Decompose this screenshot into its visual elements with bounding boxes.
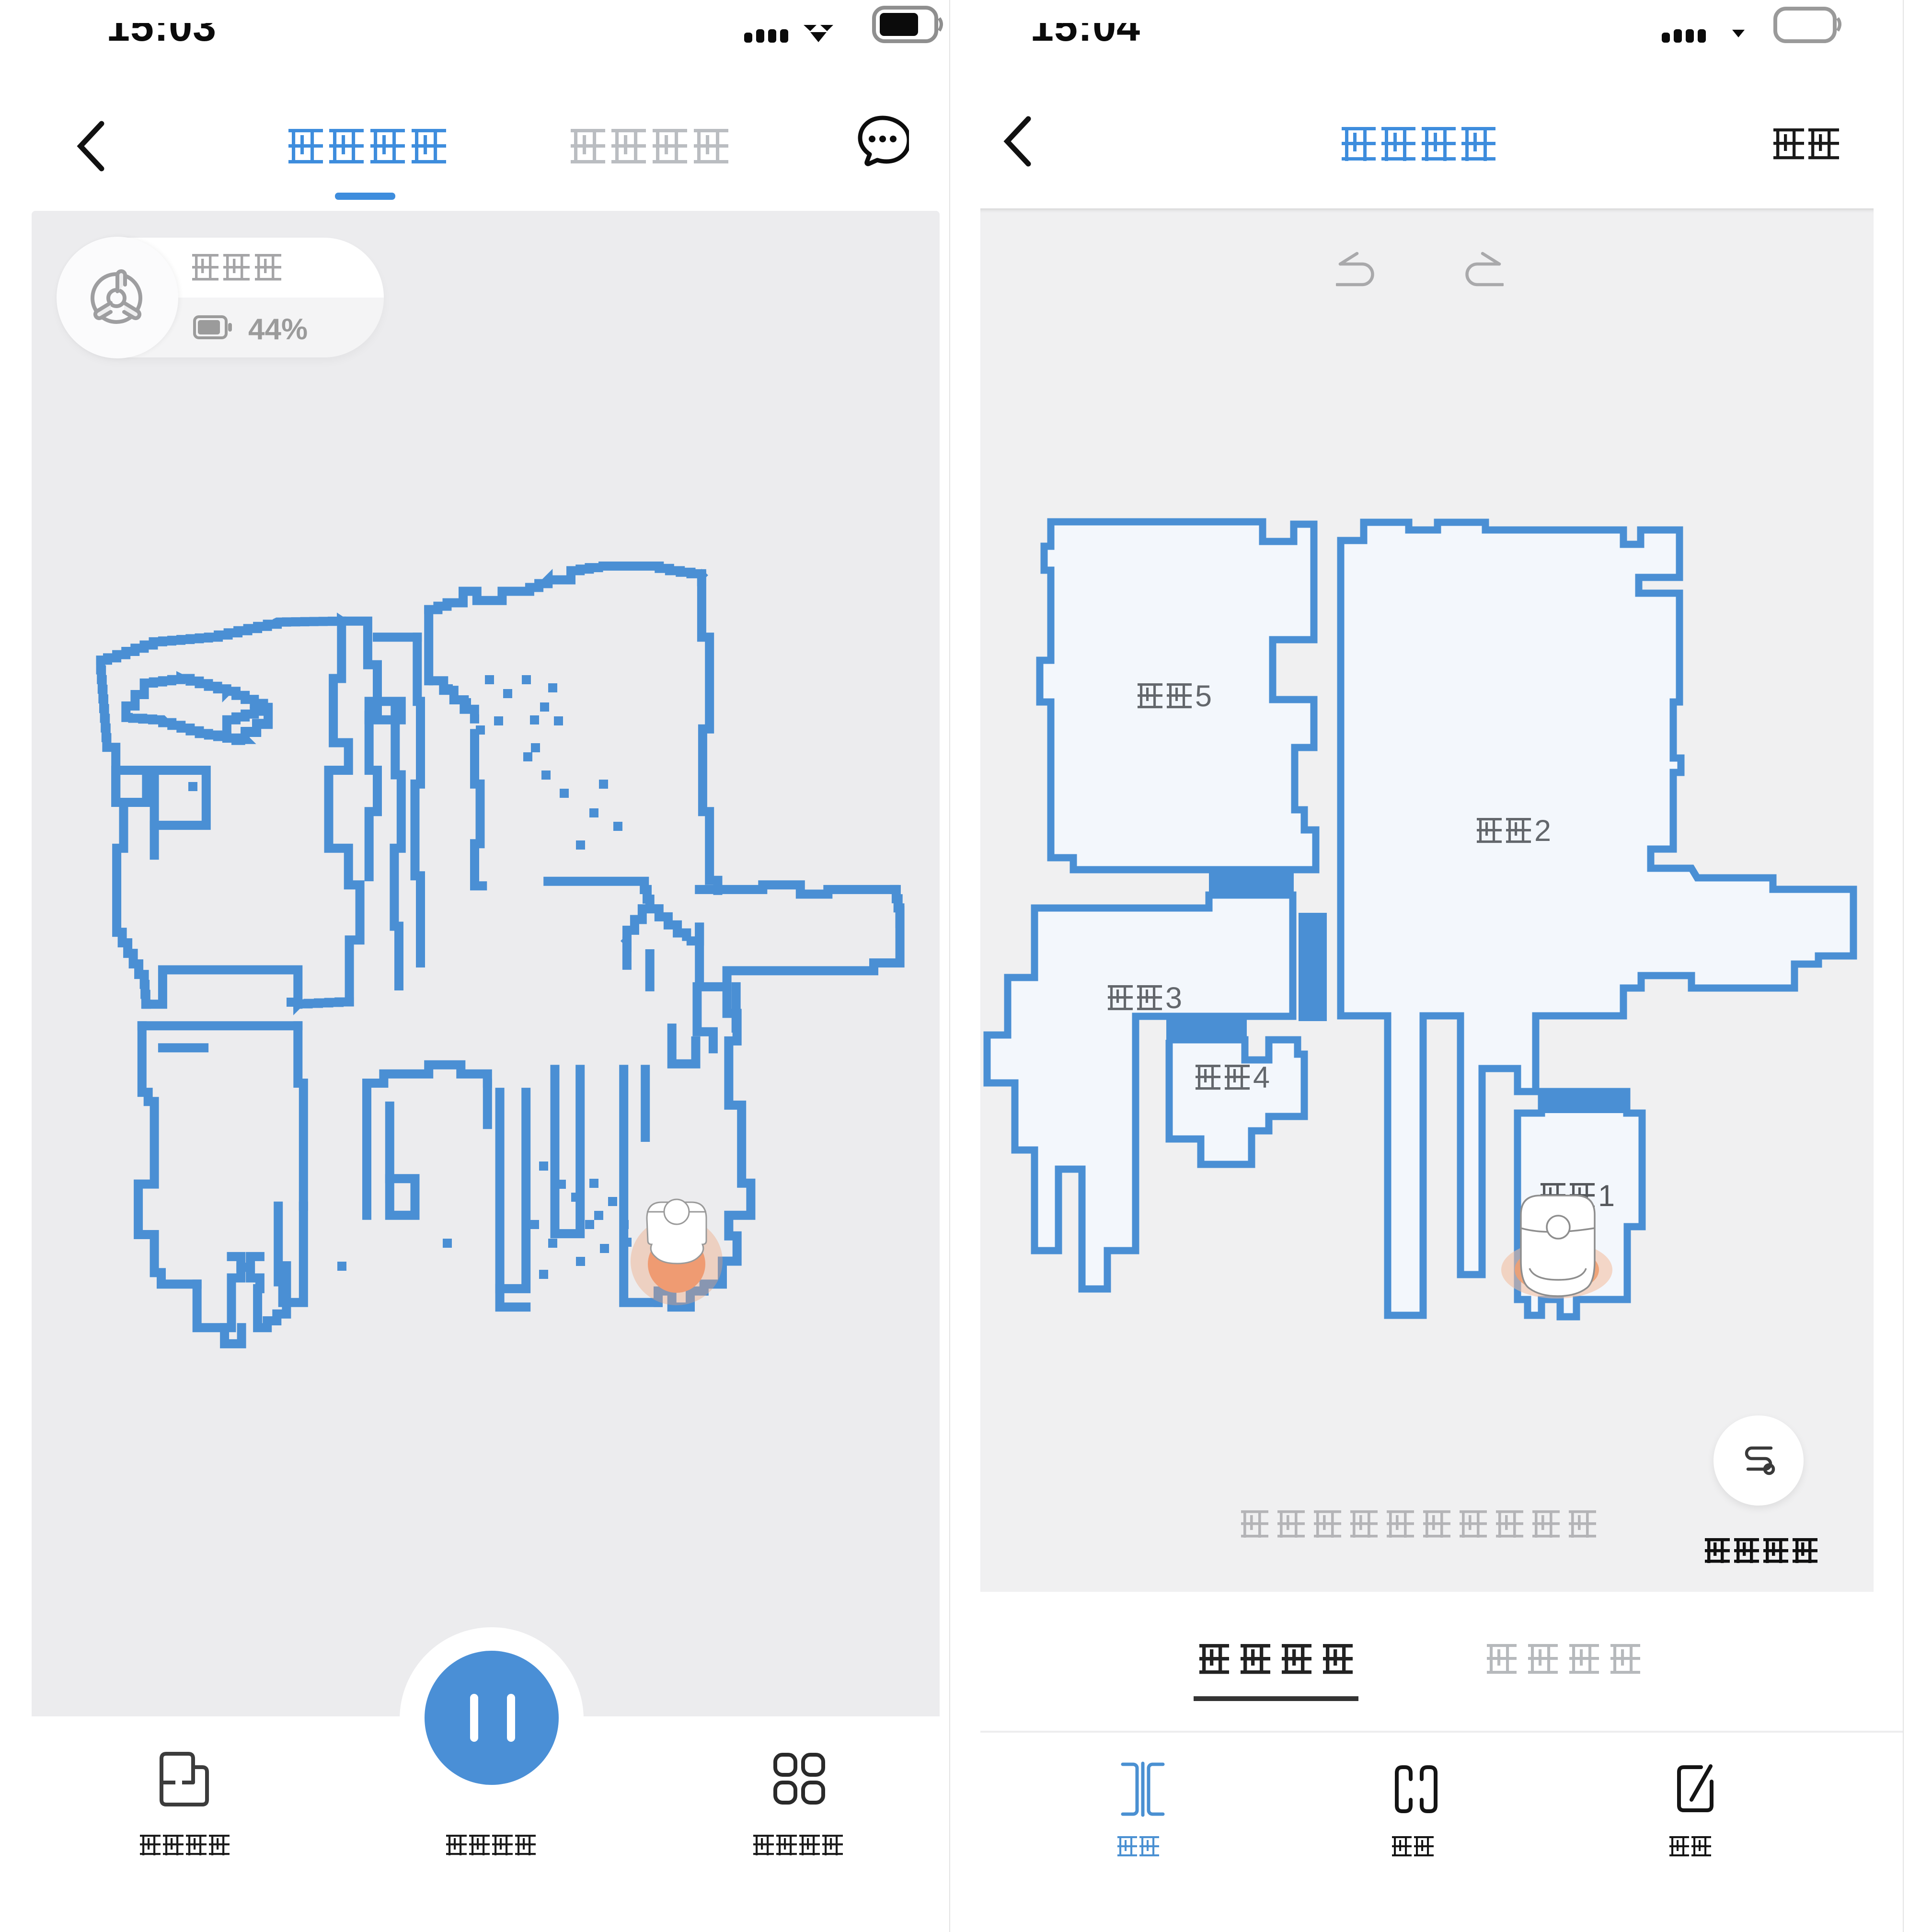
svg-text:5: 5 [1195, 679, 1212, 713]
svg-text:2: 2 [1534, 814, 1551, 848]
svg-text:3: 3 [1165, 981, 1182, 1015]
svg-text:4: 4 [1253, 1061, 1270, 1094]
svg-text:1: 1 [1598, 1179, 1615, 1213]
